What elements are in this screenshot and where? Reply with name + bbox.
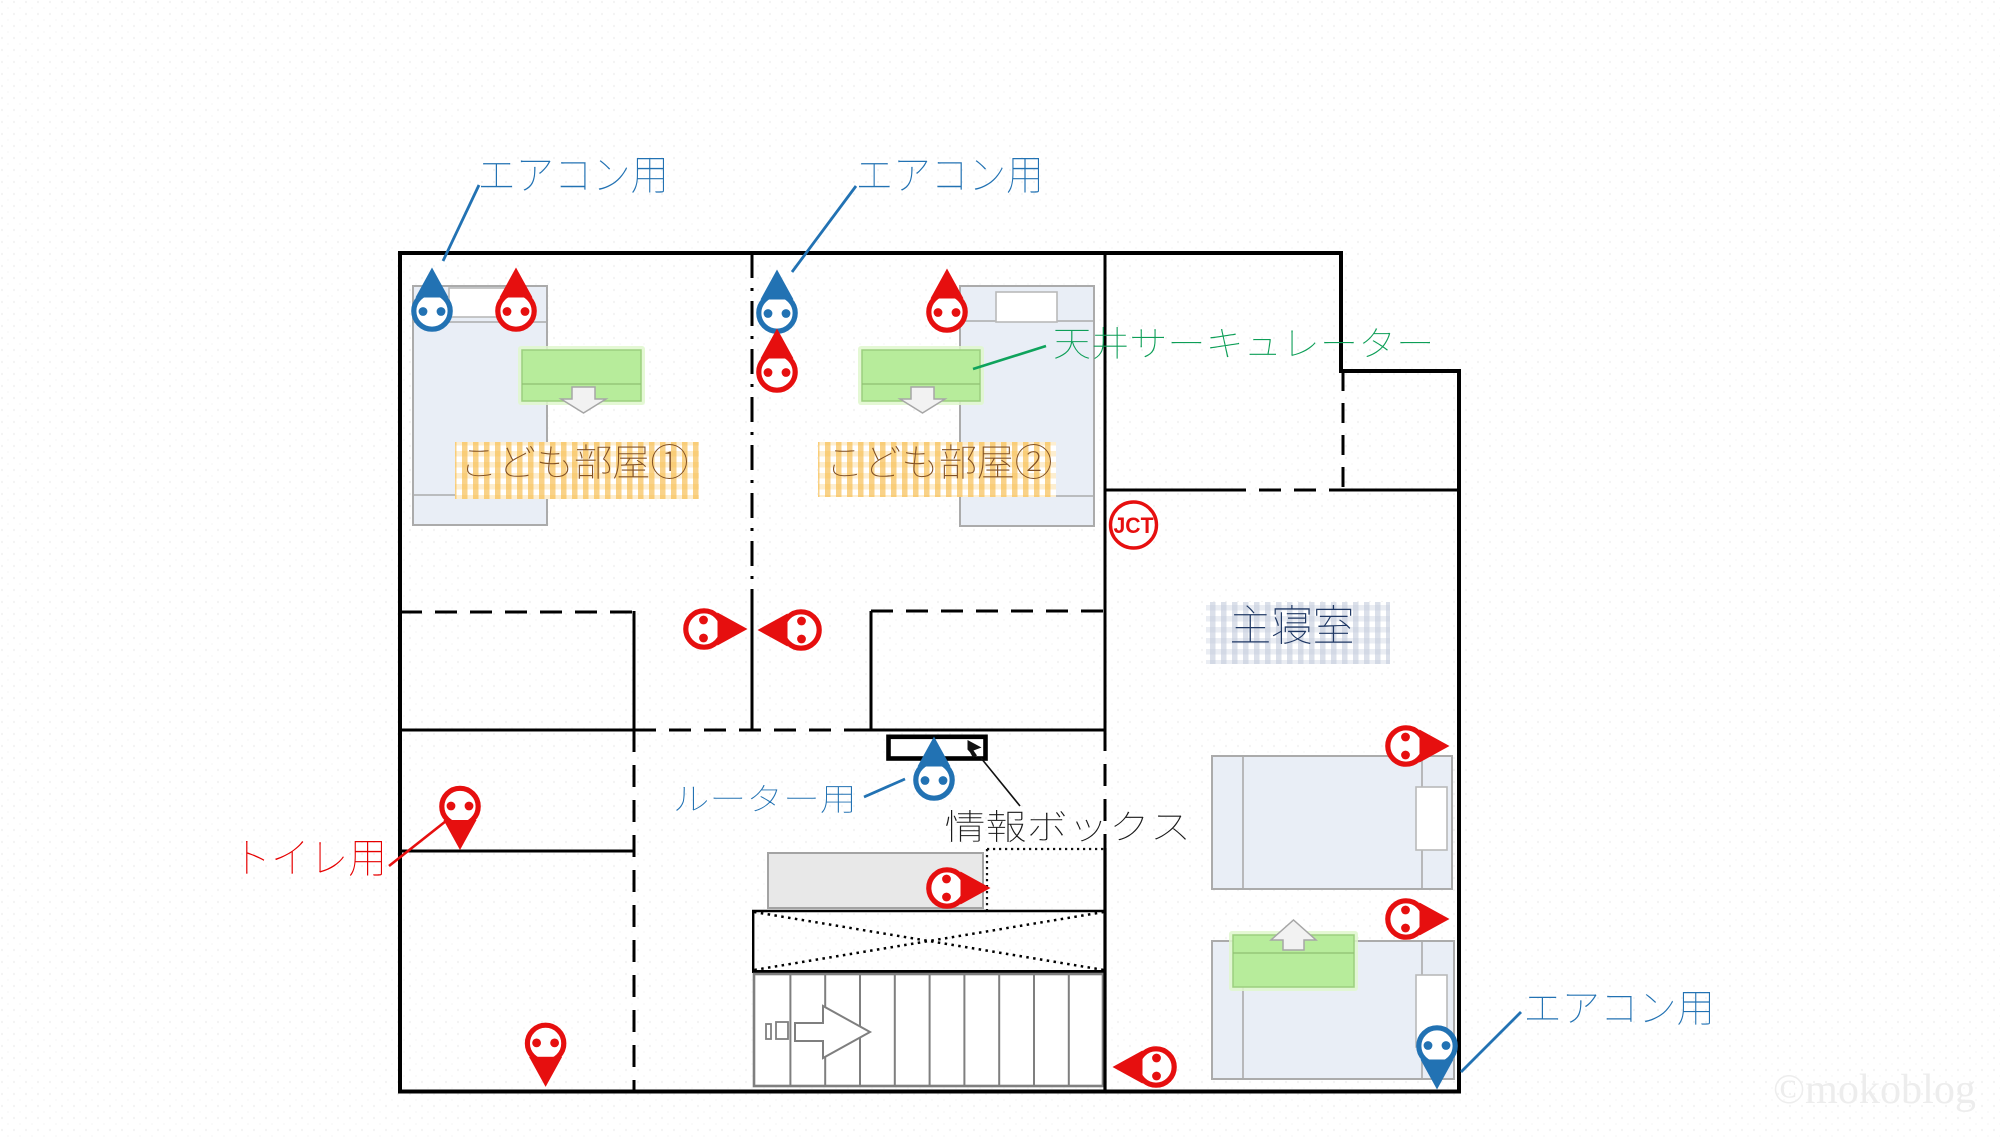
svg-text:©mokoblog: ©mokoblog: [1773, 1067, 1976, 1113]
svg-text:JCT: JCT: [1114, 513, 1155, 538]
